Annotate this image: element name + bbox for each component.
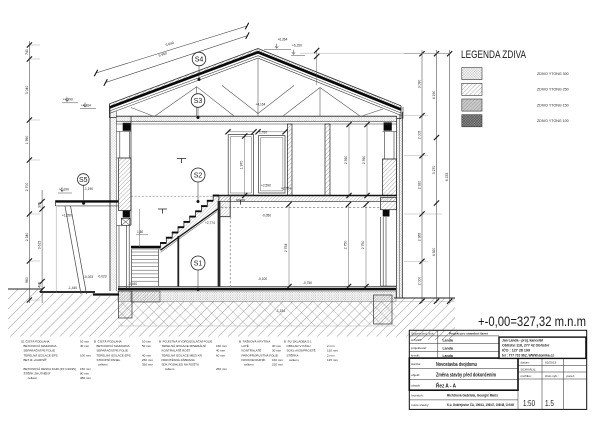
svg-text:S1: S1 <box>194 260 203 267</box>
svg-text:160 mm: 160 mm <box>272 358 283 362</box>
svg-text:80 mm: 80 mm <box>80 371 90 375</box>
svg-text:-0,050: -0,050 <box>262 214 271 218</box>
svg-text:+6,150: +6,150 <box>292 44 302 48</box>
svg-text:-0,023: -0,023 <box>84 275 93 279</box>
svg-text:+2,774: +2,774 <box>205 221 215 225</box>
svg-text:1 970: 1 970 <box>240 161 244 170</box>
svg-text:PAROTĚSNÁ ZÁBRANA: PAROTĚSNÁ ZÁBRANA <box>159 357 195 362</box>
svg-text:150 mm: 150 mm <box>80 367 91 371</box>
svg-text:TEPELNÁ IZOLACE MINERÁLNÍ: TEPELNÁ IZOLACE MINERÁLNÍ <box>159 344 206 348</box>
svg-text:ZDIVO YTONG 250: ZDIVO YTONG 250 <box>537 88 569 92</box>
svg-text:-0,023: -0,023 <box>98 275 107 279</box>
svg-text:380 mm: 380 mm <box>80 376 91 380</box>
svg-text:30 mm: 30 mm <box>272 344 282 348</box>
svg-text:tel : 777 710 962, WWW.domika.: tel : 777 710 962, WWW.domika.cz <box>502 354 554 358</box>
svg-text:1.5: 1.5 <box>545 399 554 408</box>
svg-text:ZDIVO YTONG 100: ZDIVO YTONG 100 <box>537 119 569 123</box>
svg-text:místo stavby:: místo stavby: <box>411 403 429 407</box>
svg-text:SEPARAČNÍ PE FOLIE: SEPARAČNÍ PE FOLIE <box>94 348 128 353</box>
svg-text:2 750: 2 750 <box>344 241 348 250</box>
svg-text:2 754: 2 754 <box>284 244 288 253</box>
svg-text:SOKL+KŮS/PROSTĚ: SOKL+KŮS/PROSTĚ <box>284 348 316 353</box>
svg-text:+6,364: +6,364 <box>278 38 288 42</box>
svg-text:STĚRKA: STĚRKA <box>284 352 299 357</box>
svg-text:+1,050: +1,050 <box>62 214 72 218</box>
svg-text:960: 960 <box>25 277 29 283</box>
svg-text:schválil:: schválil: <box>411 338 422 342</box>
svg-text:2 mm: 2 mm <box>327 344 335 348</box>
svg-text:OBKLAD V PÁSU: OBKLAD V PÁSU <box>284 344 311 348</box>
svg-text:SEPARAČNÍ PE FOLIE: SEPARAČNÍ PE FOLIE <box>21 348 55 353</box>
svg-text:10 mm: 10 mm <box>142 340 152 344</box>
svg-text:KONTRALATĚ: KONTRALATĚ <box>239 348 261 353</box>
svg-text:-1,190: -1,190 <box>84 187 93 191</box>
svg-text:PAROPROPUSTNÁ FOLIE: PAROPROPUSTNÁ FOLIE <box>239 353 278 357</box>
svg-text:objekt:: objekt: <box>411 373 420 377</box>
svg-text:ZDIVO YTONG 150: ZDIVO YTONG 150 <box>537 103 569 107</box>
svg-text:2 340: 2 340 <box>25 233 29 242</box>
svg-text:měřítko:: měřítko: <box>521 374 532 378</box>
svg-text:2 590: 2 590 <box>362 156 366 165</box>
svg-text:BETONOVÁ MAZANINA: BETONOVÁ MAZANINA <box>94 344 129 348</box>
svg-text:Investoři:: Investoři: <box>411 393 424 397</box>
svg-text:125 mm: 125 mm <box>327 358 338 362</box>
svg-text:30 mm: 30 mm <box>272 349 282 353</box>
svg-text:projektoval:: projektoval: <box>411 346 427 350</box>
svg-text:1 990: 1 990 <box>25 136 29 145</box>
svg-text:2 750: 2 750 <box>361 241 365 250</box>
svg-text:100 mm: 100 mm <box>80 353 91 357</box>
svg-text:250 mm: 250 mm <box>142 358 153 362</box>
svg-text:celkem: celkem <box>239 362 254 366</box>
svg-text:B ČISTÁ PODLAHA: B ČISTÁ PODLAHA <box>94 339 122 344</box>
svg-text:40 mm: 40 mm <box>216 349 226 353</box>
svg-text:celkem: celkem <box>21 376 38 380</box>
svg-text:740: 740 <box>25 49 29 55</box>
svg-text:-0,440: -0,440 <box>128 282 137 286</box>
svg-text:S1 ČISTÁ PODLAHA: S1 ČISTÁ PODLAHA <box>21 339 50 344</box>
svg-text:1,80: 1,80 <box>137 230 143 234</box>
svg-text:B TAŠKOVÁ KRYTINA: B TAŠKOVÁ KRYTINA <box>239 339 270 344</box>
svg-text:číslo výk.:: číslo výk.: <box>545 374 559 378</box>
svg-text:50 mm: 50 mm <box>142 344 152 348</box>
svg-text:SCHVÁLIL:: SCHVÁLIL: <box>521 367 537 371</box>
svg-text:40 mm: 40 mm <box>80 344 90 348</box>
svg-text:260 mm: 260 mm <box>216 367 227 371</box>
svg-text:375: 375 <box>38 202 42 208</box>
svg-text:celkem: celkem <box>159 367 175 371</box>
svg-text:B PU SKLADBA S.1: B PU SKLADBA S.1 <box>284 340 312 344</box>
svg-text:1:50: 1:50 <box>523 399 535 408</box>
svg-text:S3: S3 <box>194 98 203 105</box>
svg-text:datum:: datum: <box>521 360 531 364</box>
svg-text:2 700: 2 700 <box>25 183 29 192</box>
svg-text:celkem: celkem <box>284 358 299 362</box>
svg-text:KONTRALATĚ ROŠT: KONTRALATĚ ROŠT <box>159 348 191 353</box>
svg-text:-1,154: -1,154 <box>276 309 285 313</box>
svg-text:4 920: 4 920 <box>432 248 436 257</box>
svg-text:3 090: 3 090 <box>418 80 422 89</box>
svg-text:Obříství 118, 277 42 Obříství: Obříství 118, 277 42 Obříství <box>502 344 550 348</box>
svg-text:+2,590: +2,590 <box>261 184 271 188</box>
svg-text:Projekt pro stavební řízení: Projekt pro stavební řízení <box>449 332 488 336</box>
svg-text:obsah:: obsah: <box>411 384 420 388</box>
svg-text:IČO : 127 28 199: IČO : 127 28 199 <box>502 348 530 353</box>
svg-text:Změna stavby před dokončením: Změna stavby před dokončením <box>436 373 496 379</box>
svg-text:ŠTĚRK ZHUTNĚNÝ: ŠTĚRK ZHUTNĚNÝ <box>21 370 51 375</box>
svg-text:+4,290: +4,290 <box>63 98 73 102</box>
svg-text:TEPELNÁ IZOLACE EPS: TEPELNÁ IZOLACE EPS <box>21 353 58 357</box>
svg-text:Řez A - A: Řez A - A <box>436 381 457 389</box>
svg-text:kreslil:: kreslil: <box>411 354 420 358</box>
svg-text:+4,164: +4,164 <box>256 103 266 107</box>
svg-text:3 615: 3 615 <box>38 241 42 250</box>
svg-text:2 365: 2 365 <box>418 233 422 242</box>
svg-text:02/2013: 02/2013 <box>545 360 556 364</box>
svg-text:LEGENDA ZDIVA: LEGENDA ZDIVA <box>461 49 526 61</box>
svg-text:BETONOVÁ DESKA KARI (ZX C20/25: BETONOVÁ DESKA KARI (ZX C20/25) <box>21 367 76 371</box>
svg-text:Richtrová Gabriela, Georgič Ma: Richtrová Gabriela, Georgič Maris <box>447 393 498 397</box>
svg-text:120 mm: 120 mm <box>327 349 338 353</box>
svg-text:10 mm: 10 mm <box>80 340 90 344</box>
svg-text:405: 405 <box>38 282 42 288</box>
svg-text:BETONOVÁ MAZANINA: BETONOVÁ MAZANINA <box>21 344 56 348</box>
svg-text:3 270: 3 270 <box>432 166 436 175</box>
svg-text:350 mm: 350 mm <box>142 362 153 366</box>
svg-text:2 920: 2 920 <box>418 181 422 190</box>
svg-text:LATĚ: LATĚ <box>239 343 249 348</box>
svg-text:TEPELNÁ IZOLACE MEZI KR.: TEPELNÁ IZOLACE MEZI KR. <box>159 353 203 357</box>
svg-text:S4: S4 <box>195 56 204 63</box>
svg-text:+2,754: +2,754 <box>281 187 291 191</box>
svg-text:2 590: 2 590 <box>344 156 348 165</box>
svg-text:STROPNÍ PANEL: STROPNÍ PANEL <box>94 358 121 362</box>
svg-text:KROKVE/VAZNÍK: KROKVE/VAZNÍK <box>239 358 265 362</box>
svg-text:40 mm: 40 mm <box>142 353 152 357</box>
svg-text:Landa: Landa <box>443 354 453 358</box>
svg-text:-0,100: -0,100 <box>258 277 267 281</box>
svg-text:B POJISTNÁ HYDROIZOLAČNÍ FOLI: B POJISTNÁ HYDROIZOLAČNÍ FOLIE <box>159 339 212 344</box>
svg-text:2 000: 2 000 <box>418 277 422 286</box>
svg-text:BET.IZ.+KARISÍŤ: BET.IZ.+KARISÍŤ <box>21 357 47 362</box>
svg-text:2 005: 2 005 <box>418 131 422 140</box>
svg-text:-1,440: -1,440 <box>68 286 77 290</box>
svg-text:-0,750: -0,750 <box>303 281 312 285</box>
svg-text:3 040: 3 040 <box>25 86 29 95</box>
svg-text:stavba:: stavba: <box>411 362 421 366</box>
svg-text:pareť:: pareť: <box>567 374 575 378</box>
svg-text:SDK PODHLED NA ROŠTU: SDK PODHLED NA ROŠTU <box>159 361 199 366</box>
svg-text:160 mm: 160 mm <box>216 344 227 348</box>
svg-text:+-0,00=327,32 m.n.m: +-0,00=327,32 m.n.m <box>478 314 586 330</box>
svg-text:Landa: Landa <box>443 339 453 343</box>
svg-text:2 mm: 2 mm <box>327 353 335 357</box>
svg-text:6 153: 6 153 <box>445 173 449 182</box>
svg-text:Stupeň proj. dok.:: Stupeň proj. dok.: <box>411 332 435 336</box>
svg-text:celkem: celkem <box>94 362 108 366</box>
svg-text:TEPELNÁ IZOLACE EPS: TEPELNÁ IZOLACE EPS <box>94 353 131 357</box>
svg-text:1,750: 1,750 <box>259 131 267 135</box>
svg-text:Novostavba dvojdomu: Novostavba dvojdomu <box>436 362 477 368</box>
svg-text:S2: S2 <box>194 172 203 179</box>
svg-text:220 mm: 220 mm <box>272 362 283 366</box>
svg-text:Landa: Landa <box>443 346 453 350</box>
svg-text:K.ú. Dobřejovice ČA, 106/41, 1: K.ú. Dobřejovice ČA, 106/41, 106/47, 106… <box>447 402 514 407</box>
svg-text:60 mm: 60 mm <box>216 353 226 357</box>
svg-text:ZDIVO YTONG 300: ZDIVO YTONG 300 <box>537 72 569 76</box>
svg-text:Jan Landa - proj. kancelář: Jan Landa - proj. kancelář <box>502 339 544 343</box>
svg-text:4 190: 4 190 <box>432 91 436 100</box>
svg-text:S5: S5 <box>79 177 88 184</box>
